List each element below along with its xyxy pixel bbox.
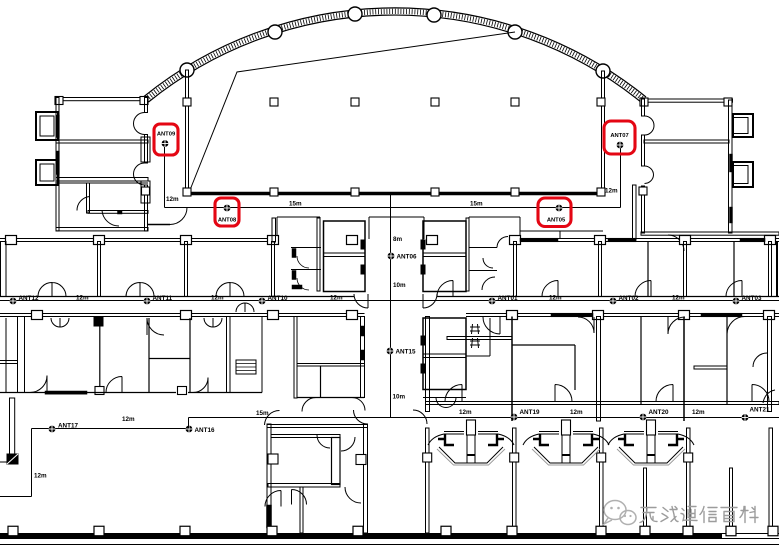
svg-text:15m: 15m [289,201,302,208]
svg-text:ANT10: ANT10 [268,295,288,302]
svg-text:ANT08: ANT08 [218,218,237,224]
svg-text:12m: 12m [549,295,562,302]
svg-text:12m: 12m [570,409,583,416]
svg-text:12m: 12m [166,196,179,203]
svg-text:12m: 12m [76,295,89,302]
svg-text:12m: 12m [122,416,135,423]
svg-text:ANT03: ANT03 [742,295,762,302]
svg-text:15m: 15m [470,201,483,208]
svg-text:10m: 10m [393,282,406,289]
svg-text:ANT11: ANT11 [153,295,173,302]
svg-text:ANT05: ANT05 [547,218,566,224]
svg-text:12m: 12m [672,295,685,302]
svg-text:12m: 12m [34,473,47,480]
svg-text:ANT21: ANT21 [750,407,770,414]
svg-text:12m: 12m [211,295,224,302]
svg-text:ANT17: ANT17 [58,423,78,430]
svg-text:ANT16: ANT16 [195,427,215,434]
svg-text:ANT15: ANT15 [396,349,416,356]
svg-text:ANT01: ANT01 [498,295,518,302]
svg-text:12m: 12m [692,409,705,416]
svg-text:10m: 10m [393,394,406,401]
svg-text:12m: 12m [330,295,343,302]
svg-text:12m: 12m [459,409,472,416]
svg-text:ANT07: ANT07 [610,133,628,139]
svg-text:8m: 8m [393,236,403,243]
svg-text:ANT12: ANT12 [19,295,39,302]
svg-text:ANT20: ANT20 [649,409,669,416]
svg-text:ANT09: ANT09 [157,132,176,138]
svg-text:15m: 15m [256,410,269,417]
svg-text:ANT06: ANT06 [397,254,417,261]
svg-text:ANT19: ANT19 [520,409,540,416]
svg-text:ANT02: ANT02 [619,295,639,302]
svg-text:12m: 12m [605,188,618,195]
